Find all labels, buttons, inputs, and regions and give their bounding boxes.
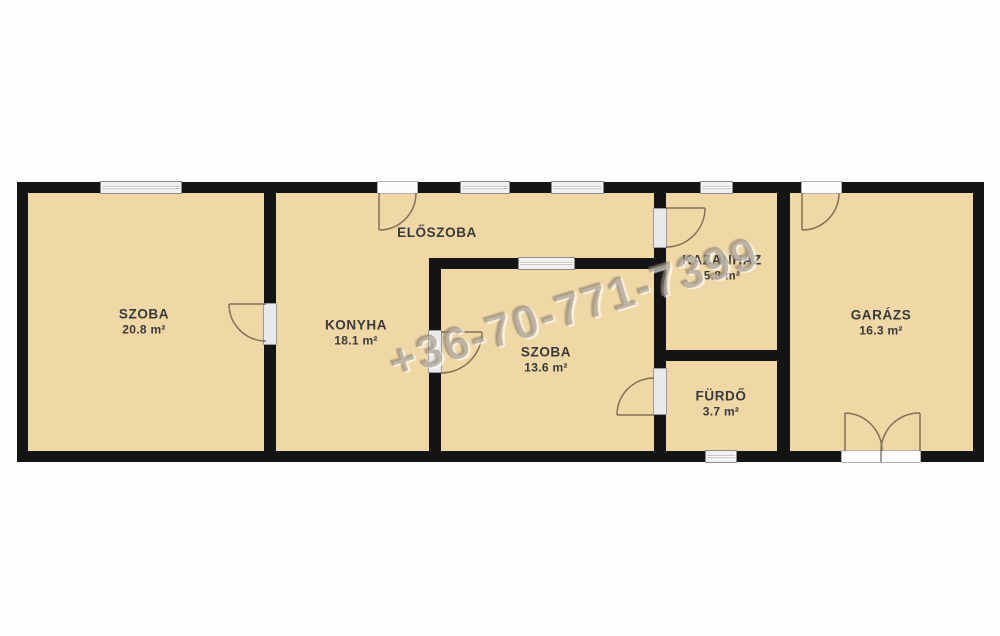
room-label-szoba-1: SZOBA 20.8 m² <box>119 308 169 337</box>
wall-segment <box>604 182 700 193</box>
room-label-eloszoba: ELŐSZOBA <box>397 226 477 240</box>
wall-segment <box>429 373 441 451</box>
room-area: 18.1 m² <box>334 335 377 348</box>
floorplan-canvas: SZOBA 20.8 m² KONYHA 18.1 m² ELŐSZOBA SZ… <box>0 0 1000 636</box>
wall-segment <box>777 193 790 451</box>
wall-segment <box>654 193 666 208</box>
wall-segment <box>842 182 984 193</box>
room-name: GARÁZS <box>851 309 912 323</box>
window <box>518 257 575 270</box>
wall-segment <box>182 182 377 193</box>
room-name: FÜRDŐ <box>696 390 747 404</box>
garage-door-center-post <box>880 451 882 462</box>
room-area: 20.8 m² <box>122 324 165 337</box>
wall-segment <box>973 182 984 462</box>
wall-segment <box>654 415 666 451</box>
door-opening <box>263 303 277 345</box>
room-label-garazs: GARÁZS 16.3 m² <box>851 309 912 338</box>
wall-segment <box>733 182 801 193</box>
room-area: 3.7 m² <box>703 406 739 419</box>
room-label-szoba-2: SZOBA 13.6 m² <box>521 346 571 375</box>
door-opening <box>653 368 667 415</box>
wall-segment <box>429 258 518 269</box>
room-name: KONYHA <box>325 319 387 333</box>
wall-segment <box>737 451 841 462</box>
wall-segment <box>17 182 100 193</box>
wall-segment <box>17 182 28 462</box>
window <box>460 181 510 194</box>
room-area: 13.6 m² <box>524 362 567 375</box>
door-opening <box>377 181 418 194</box>
wall-segment <box>654 350 790 361</box>
wall-segment <box>418 182 460 193</box>
room-name: ELŐSZOBA <box>397 226 477 240</box>
room-label-furdo: FÜRDŐ 3.7 m² <box>696 390 747 419</box>
window <box>551 181 604 194</box>
wall-segment <box>17 451 705 462</box>
room-name: SZOBA <box>119 308 169 322</box>
room-label-konyha: KONYHA 18.1 m² <box>325 319 387 348</box>
wall-segment <box>264 193 276 303</box>
room-area: 16.3 m² <box>859 325 902 338</box>
window <box>100 181 182 194</box>
wall-segment <box>264 345 276 451</box>
wall-segment <box>921 451 984 462</box>
wall-segment <box>510 182 551 193</box>
door-opening <box>653 208 667 248</box>
window <box>700 181 733 194</box>
door-opening <box>801 181 842 194</box>
window <box>705 450 737 463</box>
